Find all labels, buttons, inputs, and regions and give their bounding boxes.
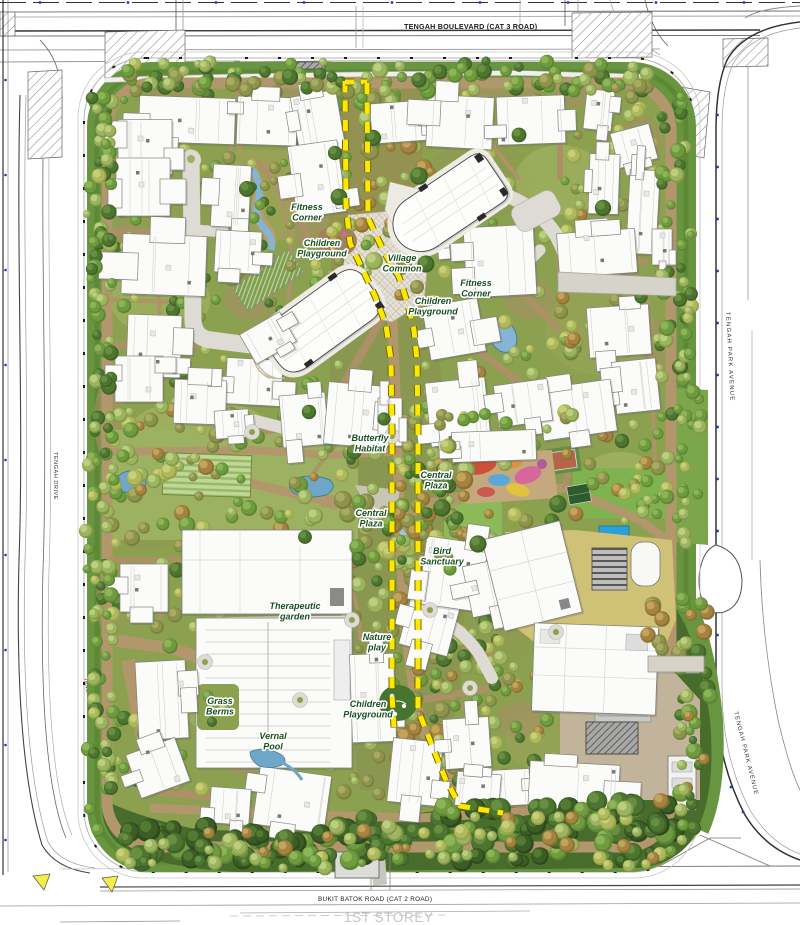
svg-text:VillageCommon: VillageCommon bbox=[383, 253, 422, 274]
svg-text:TENGAH DRIVE: TENGAH DRIVE bbox=[52, 452, 58, 500]
svg-text:1ST STOREY: 1ST STOREY bbox=[344, 910, 434, 925]
svg-text:CentralPlaza: CentralPlaza bbox=[420, 470, 452, 491]
svg-text:ChildrenPlayground: ChildrenPlayground bbox=[297, 238, 347, 259]
svg-text:FitnessCorner: FitnessCorner bbox=[291, 202, 323, 223]
svg-text:BUKIT BATOK ROAD (CAT 2 ROAD): BUKIT BATOK ROAD (CAT 2 ROAD) bbox=[318, 896, 432, 903]
svg-text:ChildrenPlayground: ChildrenPlayground bbox=[408, 296, 458, 317]
svg-text:ChildrenPlayground: ChildrenPlayground bbox=[343, 699, 393, 720]
svg-text:CentralPlaza: CentralPlaza bbox=[355, 508, 387, 529]
svg-text:GrassBerms: GrassBerms bbox=[206, 696, 234, 717]
svg-text:ButterflyHabitat: ButterflyHabitat bbox=[351, 433, 389, 454]
svg-text:FitnessCorner: FitnessCorner bbox=[460, 278, 492, 299]
svg-text:TENGAH BOULEVARD (CAT 3 ROAD): TENGAH BOULEVARD (CAT 3 ROAD) bbox=[404, 22, 538, 31]
